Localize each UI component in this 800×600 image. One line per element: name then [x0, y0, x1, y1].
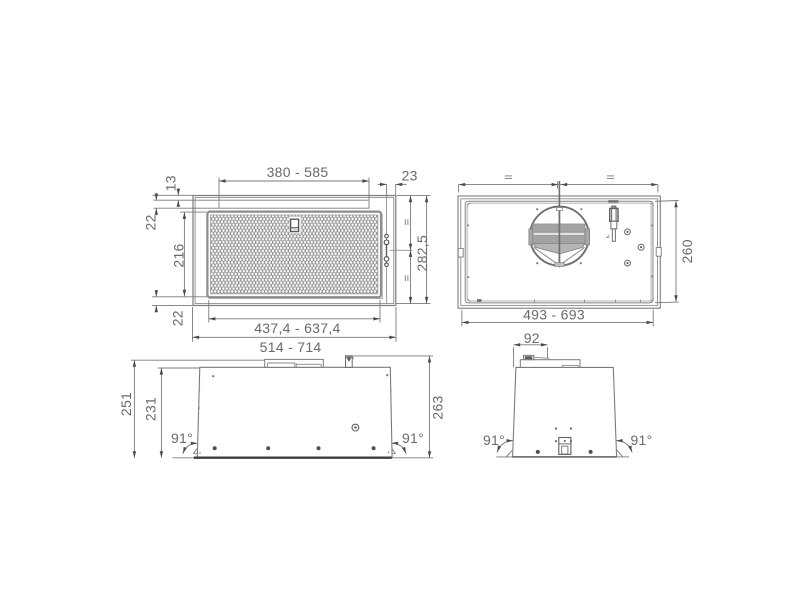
- svg-text:22: 22: [142, 214, 158, 230]
- svg-text:23: 23: [402, 168, 418, 184]
- svg-text:22: 22: [169, 310, 185, 326]
- svg-text:13: 13: [162, 175, 178, 191]
- svg-text:263: 263: [429, 395, 445, 419]
- svg-text:260: 260: [679, 239, 695, 263]
- svg-text:514 - 714: 514 - 714: [260, 339, 322, 355]
- svg-text:282,5: 282,5: [414, 235, 430, 272]
- svg-text:380 - 585: 380 - 585: [267, 164, 329, 180]
- svg-text:216: 216: [170, 243, 186, 267]
- svg-text:92: 92: [524, 330, 540, 346]
- svg-text:493 - 693: 493 - 693: [523, 307, 585, 323]
- svg-text:91°: 91°: [171, 430, 193, 446]
- svg-text:437,4 - 637,4: 437,4 - 637,4: [254, 320, 340, 336]
- svg-text:91°: 91°: [630, 432, 652, 448]
- svg-text:91°: 91°: [483, 432, 505, 448]
- svg-text:91°: 91°: [402, 430, 424, 446]
- svg-text:251: 251: [118, 392, 134, 416]
- svg-text:231: 231: [143, 397, 159, 421]
